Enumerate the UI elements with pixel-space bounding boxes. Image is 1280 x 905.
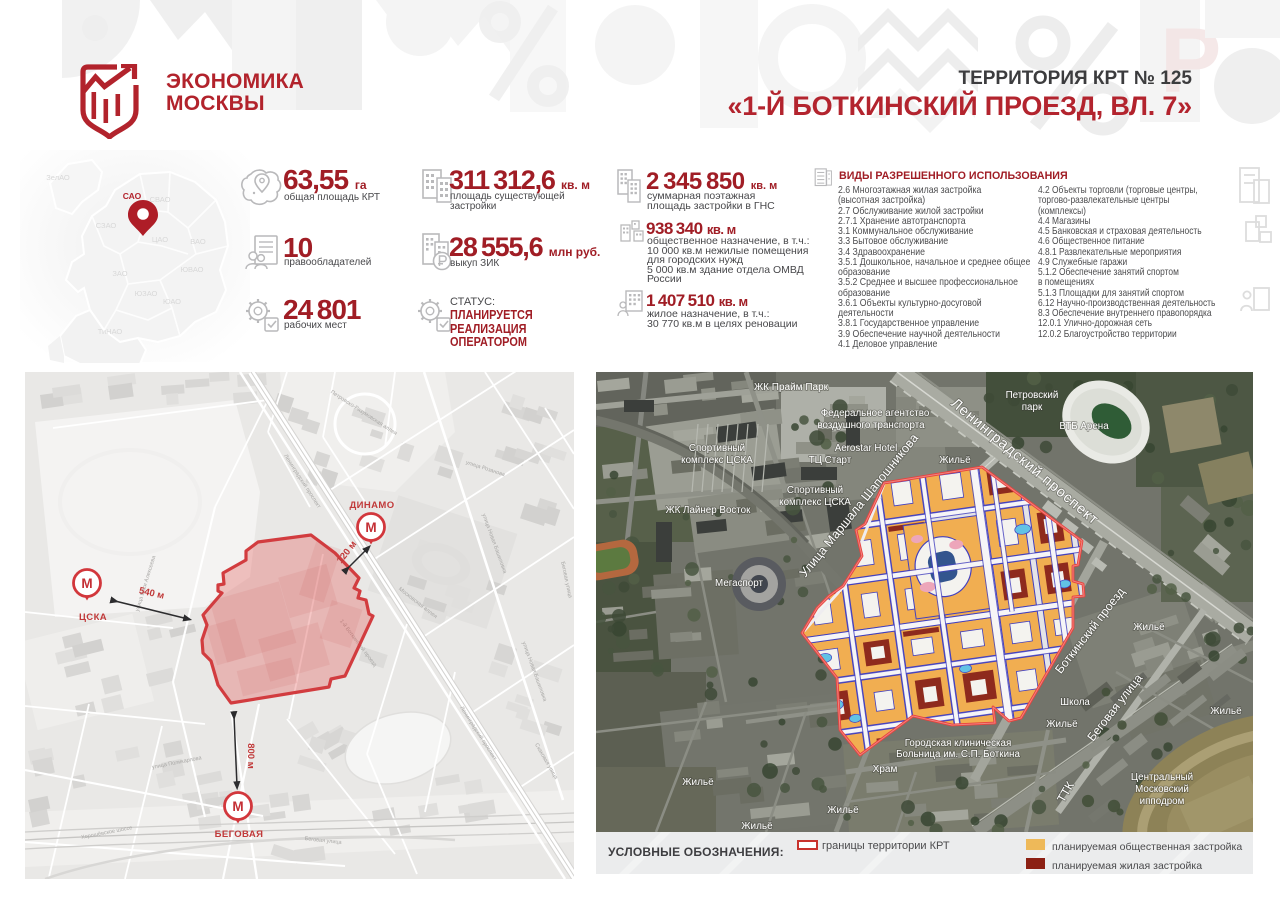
svg-text:М: М bbox=[232, 799, 243, 814]
svg-text:ДИНАМО: ДИНАМО bbox=[349, 500, 394, 511]
svg-text:ипподром: ипподром bbox=[1140, 796, 1185, 807]
svg-text:Жильё: Жильё bbox=[741, 821, 773, 832]
svg-text:Жильё: Жильё bbox=[1133, 622, 1165, 633]
svg-text:Петровский: Петровский bbox=[1006, 390, 1059, 401]
svg-text:СВАО: СВАО bbox=[150, 195, 171, 204]
svg-text:ТЦ Старт: ТЦ Старт bbox=[809, 455, 852, 466]
svg-text:ЮАО: ЮАО bbox=[163, 297, 181, 306]
svg-text:Спортивный: Спортивный bbox=[689, 443, 745, 454]
svg-text:М: М bbox=[81, 576, 92, 591]
svg-text:ЗАО: ЗАО bbox=[112, 269, 127, 278]
svg-text:ЮЗАО: ЮЗАО bbox=[135, 289, 158, 298]
svg-text:Городская клиническая: Городская клиническая bbox=[905, 738, 1012, 749]
svg-text:СЗАО: СЗАО bbox=[96, 221, 117, 230]
svg-text:Жильё: Жильё bbox=[682, 777, 714, 788]
svg-text:Спортивный: Спортивный bbox=[787, 485, 843, 496]
svg-text:Федеральное агентство: Федеральное агентство bbox=[821, 408, 930, 419]
svg-text:ЖК Лайнер Восток: ЖК Лайнер Восток bbox=[666, 505, 752, 516]
svg-text:Храм: Храм bbox=[873, 764, 898, 775]
svg-text:ВТБ Арена: ВТБ Арена bbox=[1059, 421, 1109, 432]
svg-text:Жильё: Жильё bbox=[1210, 706, 1242, 717]
svg-text:воздушного транспорта: воздушного транспорта bbox=[817, 420, 925, 431]
svg-text:Московский: Московский bbox=[1135, 784, 1189, 795]
svg-text:ЮВАО: ЮВАО bbox=[180, 265, 203, 274]
svg-text:ЖК Прайм Парк: ЖК Прайм Парк bbox=[754, 382, 829, 393]
svg-text:Aerostar Hotel: Aerostar Hotel bbox=[835, 443, 898, 454]
svg-text:Жильё: Жильё bbox=[939, 455, 971, 466]
svg-text:комплекс ЦСКА: комплекс ЦСКА bbox=[681, 455, 753, 466]
svg-text:ЦСКА: ЦСКА bbox=[79, 612, 107, 623]
svg-text:М: М bbox=[365, 520, 376, 535]
svg-text:Центральный: Центральный bbox=[1131, 772, 1193, 783]
svg-text:САО: САО bbox=[123, 191, 142, 201]
svg-text:Больница им. С.П. Боткина: Больница им. С.П. Боткина bbox=[896, 749, 1020, 760]
svg-text:Жильё: Жильё bbox=[1046, 719, 1078, 730]
svg-text:800 м: 800 м bbox=[245, 743, 256, 769]
svg-text:парк: парк bbox=[1022, 402, 1043, 413]
svg-text:комплекс ЦСКА: комплекс ЦСКА bbox=[779, 497, 851, 508]
svg-text:ВАО: ВАО bbox=[190, 237, 206, 246]
svg-text:Школа: Школа bbox=[1060, 697, 1090, 708]
svg-text:ЗелАО: ЗелАО bbox=[46, 173, 70, 182]
svg-text:ТиНАО: ТиНАО bbox=[98, 327, 123, 336]
svg-text:БЕГОВАЯ: БЕГОВАЯ bbox=[215, 829, 264, 840]
svg-text:Жильё: Жильё bbox=[827, 805, 859, 816]
svg-text:ЦАО: ЦАО bbox=[152, 235, 168, 244]
svg-text:Мегаспорт: Мегаспорт bbox=[715, 578, 763, 589]
